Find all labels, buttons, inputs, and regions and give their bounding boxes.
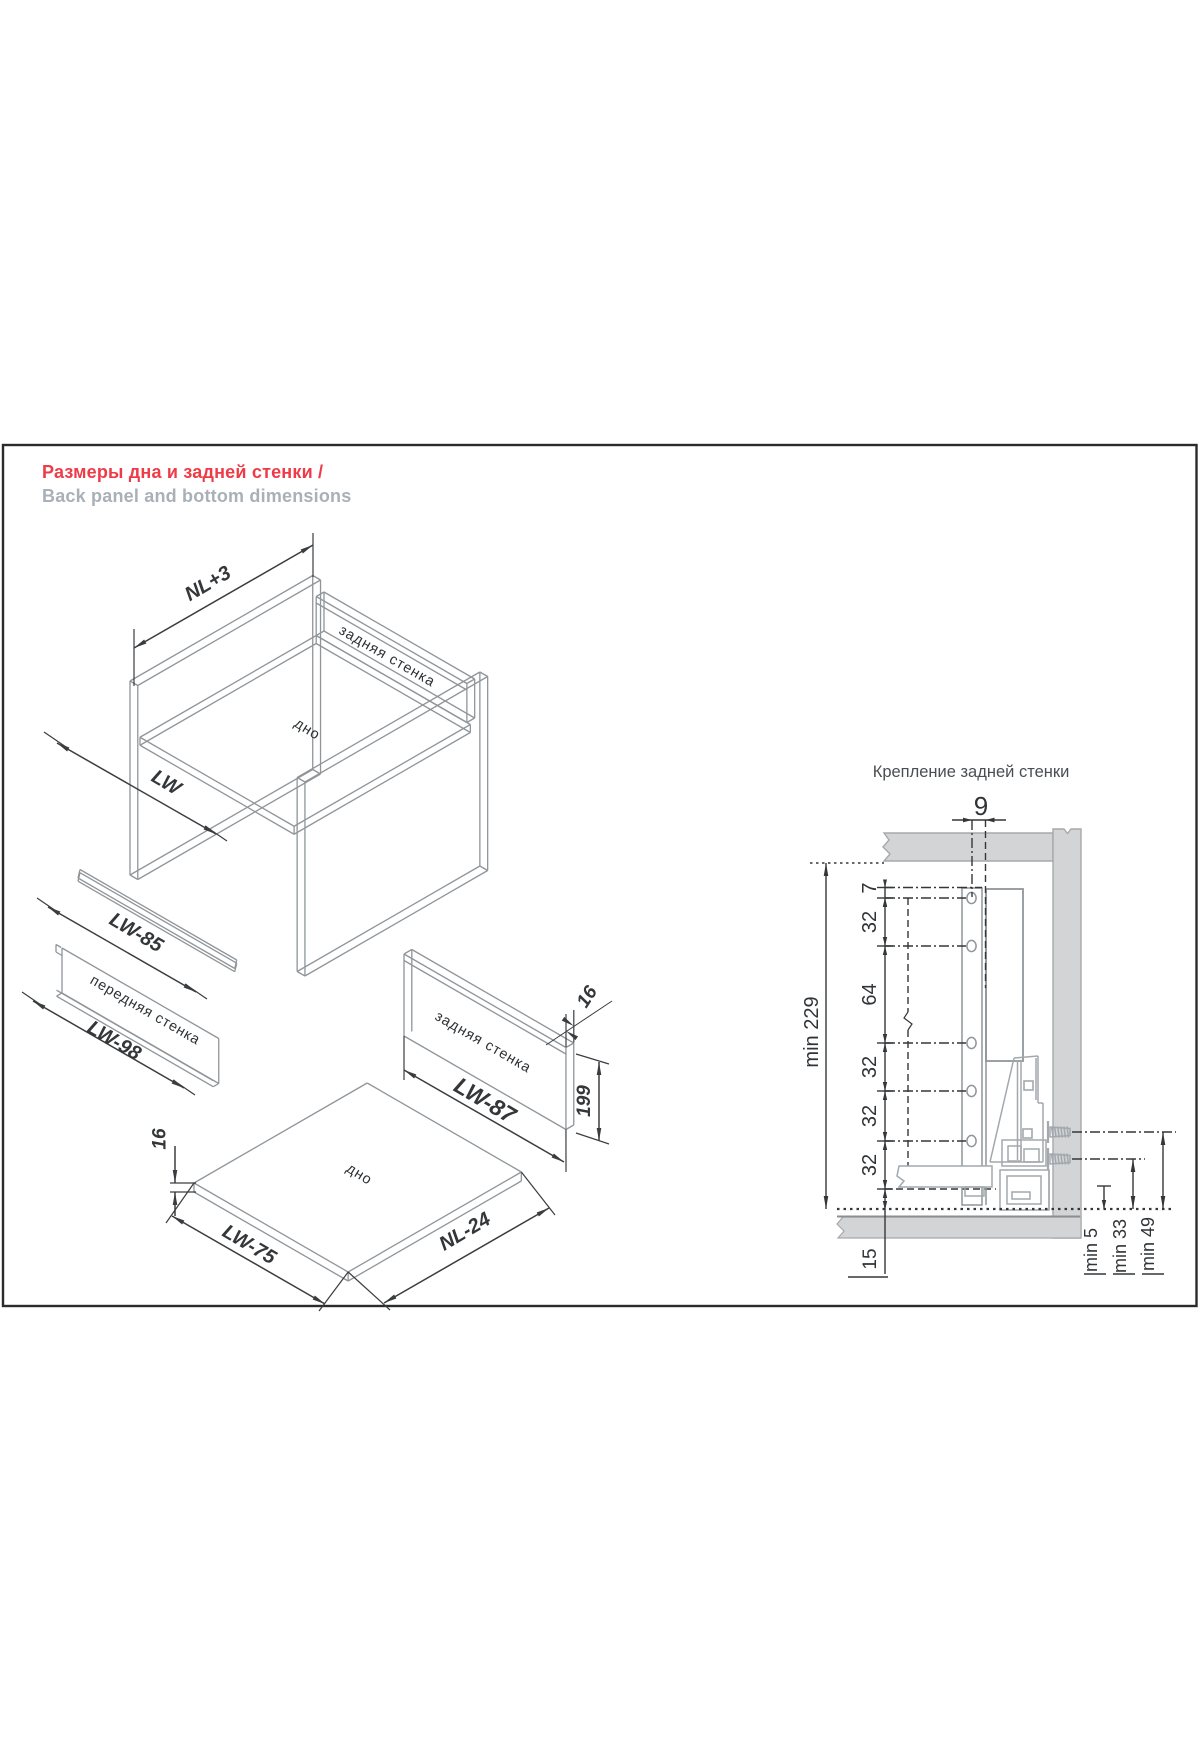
svg-text:LW-87: LW-87 [450,1072,522,1129]
svg-text:64: 64 [859,983,881,1005]
svg-text:задняя стенка: задняя стенка [432,1008,534,1076]
svg-text:7: 7 [859,882,881,893]
svg-text:задняя стенка: задняя стенка [336,622,438,690]
svg-text:min 33: min 33 [1110,1219,1130,1273]
svg-text:32: 32 [859,911,881,933]
svg-text:199: 199 [574,1085,595,1117]
svg-text:16: 16 [573,982,602,1012]
svg-text:Крепление задней стенки: Крепление задней стенки [873,763,1070,781]
svg-text:32: 32 [859,1105,881,1127]
svg-text:NL-24: NL-24 [435,1208,494,1255]
svg-text:15: 15 [860,1248,881,1269]
svg-text:LW-85: LW-85 [105,909,167,958]
svg-text:дно: дно [343,1161,375,1189]
svg-text:32: 32 [859,1056,881,1078]
svg-text:32: 32 [859,1154,881,1176]
svg-text:16: 16 [150,1128,171,1150]
svg-text:min 5: min 5 [1081,1228,1101,1272]
svg-text:min 229: min 229 [801,996,823,1067]
svg-text:9: 9 [974,791,988,821]
svg-text:min 49: min 49 [1138,1217,1158,1271]
svg-text:NL+3: NL+3 [181,562,235,606]
svg-text:дно: дно [291,716,323,744]
svg-text:LW: LW [148,766,187,801]
